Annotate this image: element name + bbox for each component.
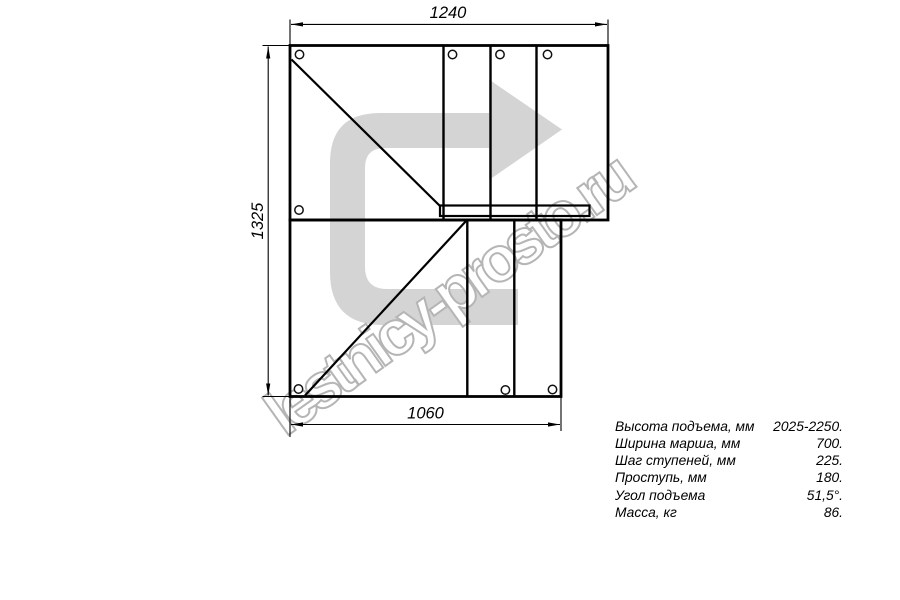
svg-text:1325: 1325 <box>249 202 267 240</box>
svg-text:86.: 86. <box>824 505 843 520</box>
svg-text:Высота подъема, мм: Высота подъема, мм <box>615 419 755 434</box>
svg-text:51,5°.: 51,5°. <box>807 488 843 503</box>
svg-text:1240: 1240 <box>430 4 468 22</box>
svg-text:1060: 1060 <box>407 405 445 423</box>
svg-text:2025-2250.: 2025-2250. <box>772 419 843 434</box>
svg-text:Угол подъема: Угол подъема <box>614 488 706 503</box>
svg-text:Ширина марша, мм: Ширина марша, мм <box>615 436 741 451</box>
svg-text:Проступь, мм: Проступь, мм <box>615 470 707 485</box>
svg-text:225.: 225. <box>815 453 843 468</box>
svg-text:Масса, кг: Масса, кг <box>615 505 677 520</box>
svg-text:180.: 180. <box>816 470 843 485</box>
svg-text:700.: 700. <box>816 436 843 451</box>
svg-text:Шаг ступеней, мм: Шаг ступеней, мм <box>615 453 736 468</box>
